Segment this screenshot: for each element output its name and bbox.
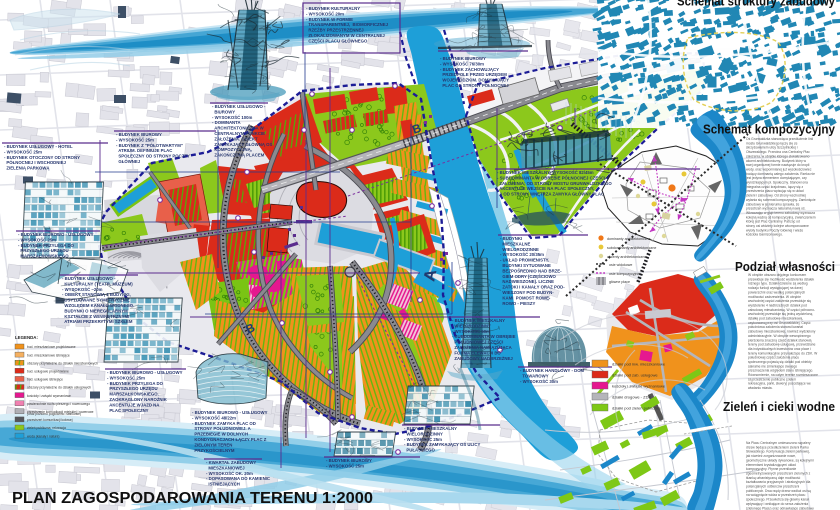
svg-text:Podział własności: Podział własności [735, 259, 835, 274]
svg-text:obszary przynależne do działek: obszary przynależne do działek mieszkani… [27, 361, 98, 365]
svg-text:bud. usługowe istniejące: bud. usługowe istniejące [27, 378, 63, 382]
svg-text:główne place: główne place [609, 280, 630, 284]
svg-text:(oraz poziomu pogłównia i słun: (oraz poziomu pogłównia i słunkowe) [27, 412, 81, 416]
svg-text:przestrzeń komunikacji kołowej: przestrzeń komunikacji kołowej [27, 418, 73, 422]
svg-text:bud. mieszkaniowe istniejące: bud. mieszkaniowe istniejące [27, 353, 70, 357]
svg-text:zieleń publiczna, rekreacja: zieleń publiczna, rekreacja [27, 426, 66, 430]
svg-text:Schemat kompozycyjny: Schemat kompozycyjny [703, 122, 836, 137]
svg-text:kościoły i związki wyznaniowe: kościoły i związki wyznaniowe [27, 394, 71, 398]
svg-text:osie kompozycyjne: osie kompozycyjne [609, 272, 639, 276]
svg-text:- BUDYNEK USŁUGOWO - KULTURAL: - BUDYNEK USŁUGOWO - KULTURALNY (TEATR, … [62, 276, 134, 324]
svg-text:akcenty architektoniczne: akcenty architektoniczne [607, 255, 646, 259]
svg-text:działki pod zieleń publiczną: działki pod zieleń publiczną [612, 406, 661, 411]
svg-text:woda (kanały i natura): woda (kanały i natura) [27, 434, 59, 438]
svg-text:działki pod inw. mieszkaniowe: działki pod inw. mieszkaniowe [612, 362, 666, 367]
svg-text:Zieleń i cieki wodne: Zieleń i cieki wodne [723, 399, 835, 414]
svg-text:działki pod zab. usługowe: działki pod zab. usługowe [612, 373, 658, 378]
svg-text:bud. mieszkaniowe projektowane: bud. mieszkaniowe projektowane [27, 345, 76, 349]
svg-text:powierzchnie ruchu pieszego i: powierzchnie ruchu pieszego i rowerowego [27, 402, 90, 406]
svg-text:subdominanty architektoniczne: subdominanty architektoniczne [607, 246, 656, 250]
svg-text:działki drogowe - ZDK: działki drogowe - ZDK [612, 395, 651, 400]
svg-text:dominanty architektoniczne: dominanty architektoniczne [607, 237, 651, 241]
svg-text:PLAN ZAGOSPODAROWANIA TERENU 1: PLAN ZAGOSPODAROWANIA TERENU 1:2000 [12, 490, 373, 507]
svg-text:Schemat struktury zabudowy: Schemat struktury zabudowy [677, 0, 835, 9]
svg-text:LEGENDA:: LEGENDA: [15, 335, 38, 340]
svg-text:obszary przynależne do działek: obszary przynależne do działek usługowyc… [27, 386, 91, 390]
svg-text:bud. usługowe projektowane: bud. usługowe projektowane [27, 370, 69, 374]
svg-text:kościoły i związki wyznaniowe: kościoły i związki wyznaniowe [612, 384, 666, 389]
svg-text:osie widokowe: osie widokowe [609, 263, 632, 267]
